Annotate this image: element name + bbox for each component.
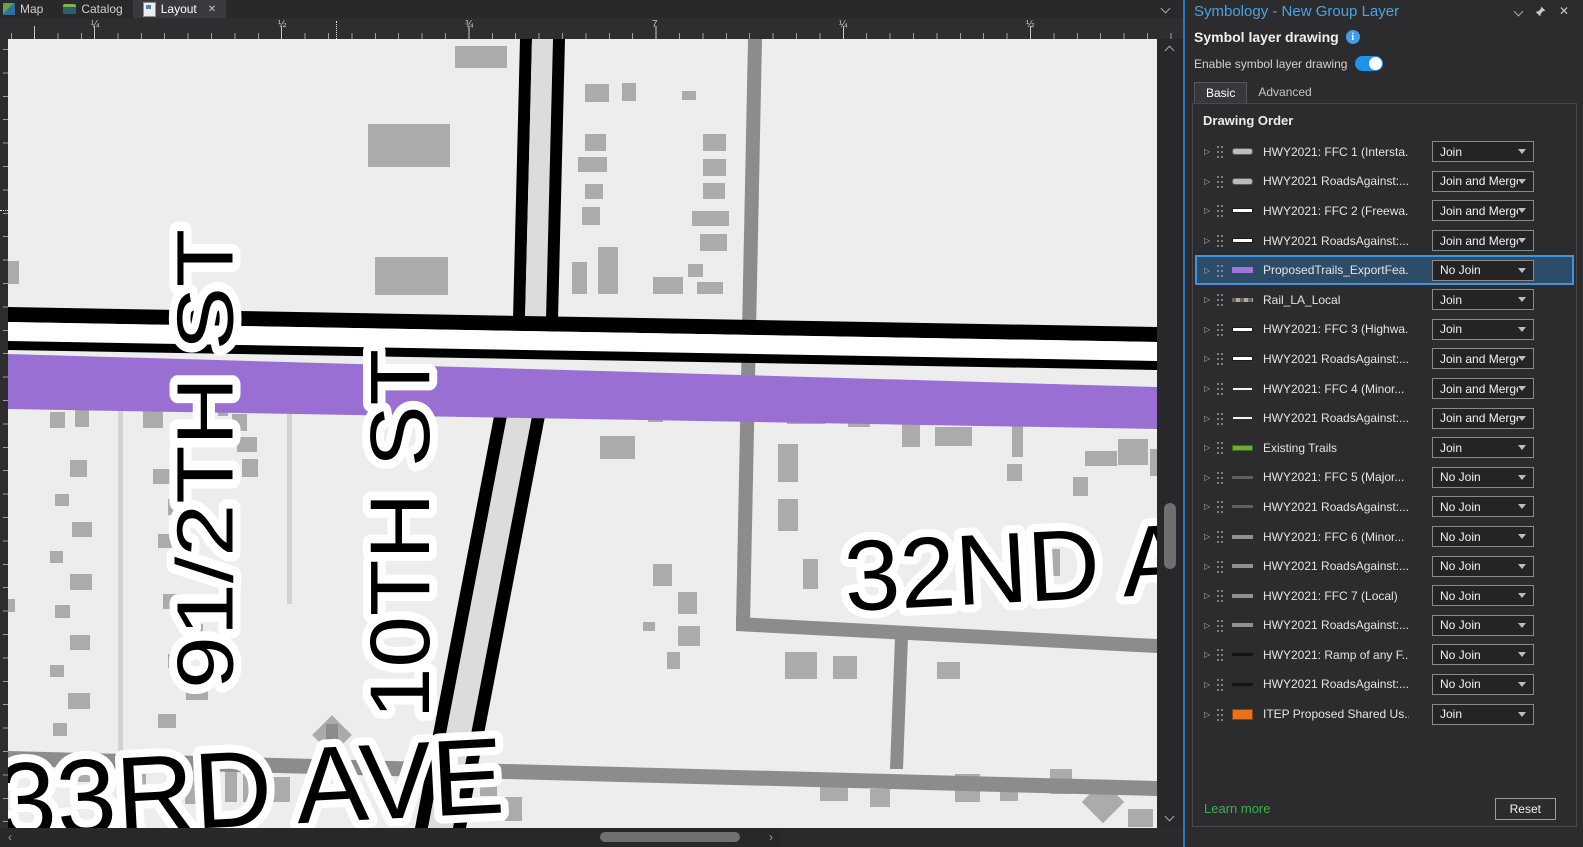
layer-name: HWY2021: FFC 5 (Major...	[1263, 470, 1409, 484]
expand-chevron-icon[interactable]	[1204, 384, 1214, 393]
catalog-icon	[63, 4, 76, 14]
layer-name: HWY2021 RoadsAgainst:...	[1263, 500, 1409, 514]
expand-chevron-icon[interactable]	[1204, 443, 1214, 452]
drag-handle-icon[interactable]	[1216, 175, 1224, 188]
dropdown-caret-icon	[1518, 712, 1526, 717]
expand-chevron-icon[interactable]	[1204, 473, 1214, 482]
expand-chevron-icon[interactable]	[1204, 325, 1214, 334]
line-symbol-swatch	[1232, 267, 1253, 273]
dropdown-caret-icon	[1518, 564, 1526, 569]
enable-symbol-layer-row: Enable symbol layer drawing	[1194, 56, 1383, 71]
layer-name: HWY2021 RoadsAgainst:...	[1263, 411, 1409, 425]
line-symbol-swatch	[1232, 594, 1253, 598]
layer-row[interactable]: HWY2021 RoadsAgainst:... No Join	[1195, 492, 1574, 522]
dropdown-caret-icon	[1518, 268, 1526, 273]
ruler-label: ¾	[465, 19, 473, 30]
layer-row[interactable]: HWY2021: FFC 3 (Highwa... Join	[1195, 315, 1574, 345]
drag-handle-icon[interactable]	[1216, 412, 1224, 425]
tenth-street-road-upper	[513, 39, 565, 319]
line-symbol-swatch	[1232, 535, 1253, 539]
drag-handle-icon[interactable]	[1216, 234, 1224, 247]
line-symbol-swatch	[1232, 298, 1253, 302]
layer-name: HWY2021: FFC 2 (Freewa...	[1263, 204, 1409, 218]
expand-chevron-icon[interactable]	[1204, 266, 1214, 275]
expand-chevron-icon[interactable]	[1204, 177, 1214, 186]
line-symbol-swatch	[1232, 623, 1253, 627]
layer-name: HWY2021 RoadsAgainst:...	[1263, 352, 1409, 366]
layer-row[interactable]: Rail_LA_Local Join	[1195, 285, 1574, 315]
dropdown-caret-icon	[1518, 593, 1526, 598]
join-mode-dropdown[interactable]: No Join	[1432, 496, 1534, 517]
pin-icon[interactable]	[1535, 6, 1546, 17]
dropdown-caret-icon	[1518, 149, 1526, 154]
join-mode-dropdown[interactable]: Join	[1432, 141, 1534, 162]
layer-name: HWY2021: FFC 3 (Highwa...	[1263, 322, 1409, 336]
line-symbol-swatch	[1232, 356, 1253, 361]
expand-chevron-icon[interactable]	[1204, 502, 1214, 511]
drag-handle-icon[interactable]	[1216, 500, 1224, 513]
join-mode-dropdown[interactable]: No Join	[1432, 526, 1534, 547]
ruler-major-ticks	[0, 26, 1183, 39]
dropdown-caret-icon	[1518, 208, 1526, 213]
join-mode-dropdown[interactable]: No Join	[1432, 644, 1534, 665]
reset-button[interactable]: Reset	[1495, 798, 1556, 820]
ruler-label: ¼	[839, 19, 847, 30]
dropdown-caret-icon	[1518, 504, 1526, 509]
street-label-32nd-ave: 32ND A	[841, 503, 1157, 633]
drag-handle-icon[interactable]	[1216, 530, 1224, 543]
scroll-right-icon[interactable]: ›	[769, 830, 773, 844]
drag-handle-icon[interactable]	[1216, 352, 1224, 365]
layout-map-canvas[interactable]: 91/2TH ST 10TH ST 32ND A 33RD AVE	[8, 39, 1157, 828]
ruler-label: ½	[1026, 19, 1034, 30]
ruler-label: ½	[278, 19, 286, 30]
layer-row[interactable]: HWY2021 RoadsAgainst:... Join and Merge	[1195, 344, 1574, 374]
line-symbol-swatch	[1232, 178, 1253, 185]
drag-handle-icon[interactable]	[1216, 619, 1224, 632]
horizontal-scrollbar-thumb[interactable]	[600, 832, 740, 842]
dropdown-caret-icon	[1518, 623, 1526, 628]
line-symbol-swatch	[1232, 709, 1253, 720]
drag-handle-icon[interactable]	[1216, 441, 1224, 454]
drag-handle-icon[interactable]	[1216, 293, 1224, 306]
join-mode-dropdown[interactable]: No Join	[1432, 556, 1534, 577]
layer-row[interactable]: HWY2021: FFC 2 (Freewa... Join and Merge	[1195, 196, 1574, 226]
join-mode-dropdown[interactable]: Join and Merge	[1432, 230, 1534, 251]
layer-row[interactable]: HWY2021: FFC 7 (Local) No Join	[1195, 581, 1574, 611]
horizontal-ruler: ¼ ½ ¾ 7 ¼ ½	[0, 18, 1183, 40]
enable-toggle[interactable]	[1355, 56, 1383, 71]
layer-row[interactable]: HWY2021: FFC 5 (Major... No Join	[1195, 463, 1574, 493]
join-mode-dropdown[interactable]: Join	[1432, 289, 1534, 310]
line-symbol-swatch	[1232, 148, 1253, 155]
layer-name: ProposedTrails_ExportFea...	[1263, 263, 1409, 277]
layer-name: HWY2021 RoadsAgainst:...	[1263, 618, 1409, 632]
drawing-order-list: HWY2021: FFC 1 (Intersta... Join HWY2021…	[1195, 137, 1574, 729]
expand-chevron-icon[interactable]	[1204, 236, 1214, 245]
scroll-up-icon[interactable]	[1165, 46, 1175, 56]
layout-page-icon	[143, 2, 156, 17]
expand-chevron-icon[interactable]	[1204, 710, 1214, 719]
panel-tabs: Basic Advanced	[1194, 82, 1323, 103]
layer-row[interactable]: HWY2021 RoadsAgainst:... Join and Merge	[1195, 403, 1574, 433]
drag-handle-icon[interactable]	[1216, 648, 1224, 661]
join-mode-dropdown[interactable]: No Join	[1432, 674, 1534, 695]
line-symbol-swatch	[1232, 653, 1253, 656]
expand-chevron-icon[interactable]	[1204, 562, 1214, 571]
line-symbol-swatch	[1232, 445, 1253, 451]
vertical-scrollbar[interactable]	[1157, 39, 1183, 828]
symbol-layer-drawing-label: Symbol layer drawing	[1194, 29, 1339, 45]
expand-chevron-icon[interactable]	[1204, 147, 1214, 156]
tab-catalog[interactable]: Catalog	[53, 0, 132, 18]
join-mode-dropdown[interactable]: Join	[1432, 704, 1534, 725]
layer-row[interactable]: HWY2021 RoadsAgainst:... Join and Merge	[1195, 167, 1574, 197]
vertical-scrollbar-thumb[interactable]	[1164, 503, 1176, 569]
close-tab-icon[interactable]: ✕	[208, 4, 216, 15]
layer-name: Existing Trails	[1263, 441, 1409, 455]
tab-advanced[interactable]: Advanced	[1247, 82, 1322, 103]
scroll-down-icon[interactable]	[1165, 812, 1175, 822]
close-panel-icon[interactable]: ✕	[1559, 5, 1569, 17]
line-symbol-swatch	[1232, 683, 1253, 686]
layer-name: HWY2021 RoadsAgainst:...	[1263, 234, 1409, 248]
drag-handle-icon[interactable]	[1216, 382, 1224, 395]
expand-chevron-icon[interactable]	[1204, 354, 1214, 363]
join-mode-dropdown[interactable]: Join and Merge	[1432, 378, 1534, 399]
basic-tab-content: Drawing Order HWY2021: FFC 1 (Intersta..…	[1192, 103, 1577, 827]
expand-chevron-icon[interactable]	[1204, 621, 1214, 630]
join-mode-dropdown[interactable]: Join	[1432, 437, 1534, 458]
layer-row[interactable]: HWY2021: Ramp of any F... No Join	[1195, 640, 1574, 670]
dropdown-caret-icon	[1518, 534, 1526, 539]
expand-chevron-icon[interactable]	[1204, 532, 1214, 541]
layer-row[interactable]: ITEP Proposed Shared Us... Join	[1195, 699, 1574, 729]
join-mode-dropdown[interactable]: No Join	[1432, 260, 1534, 281]
line-symbol-swatch	[1232, 327, 1253, 332]
layout-view-area: Map Catalog Layout ✕ ¼ ½ ¾ 7 ¼ ½	[0, 0, 1183, 847]
dropdown-caret-icon	[1518, 416, 1526, 421]
arcgis-pro-window: Map Catalog Layout ✕ ¼ ½ ¾ 7 ¼ ½	[0, 0, 1583, 847]
expand-chevron-icon[interactable]	[1204, 295, 1214, 304]
horizontal-scrollbar[interactable]: ‹ ›	[0, 828, 783, 847]
layer-name: HWY2021 RoadsAgainst:...	[1263, 559, 1409, 573]
tab-map[interactable]: Map	[0, 0, 53, 18]
dropdown-caret-icon	[1518, 475, 1526, 480]
dropdown-caret-icon	[1518, 179, 1526, 184]
ruler-guide-line	[336, 21, 337, 39]
drag-handle-icon[interactable]	[1216, 471, 1224, 484]
expand-chevron-icon[interactable]	[1204, 206, 1214, 215]
drag-handle-icon[interactable]	[1216, 678, 1224, 691]
line-symbol-swatch	[1232, 387, 1253, 391]
layer-row[interactable]: HWY2021 RoadsAgainst:... No Join	[1195, 670, 1574, 700]
drag-handle-icon[interactable]	[1216, 204, 1224, 217]
dropdown-caret-icon	[1518, 238, 1526, 243]
join-mode-dropdown[interactable]: Join and Merge	[1432, 348, 1534, 369]
line-symbol-swatch	[1232, 208, 1253, 213]
dropdown-caret-icon	[1518, 356, 1526, 361]
layer-name: HWY2021: FFC 1 (Intersta...	[1263, 145, 1409, 159]
layer-row[interactable]: HWY2021: FFC 6 (Minor... No Join	[1195, 522, 1574, 552]
expand-chevron-icon[interactable]	[1204, 650, 1214, 659]
join-mode-dropdown[interactable]: No Join	[1432, 585, 1534, 606]
tab-catalog-label: Catalog	[81, 2, 122, 16]
expand-chevron-icon[interactable]	[1204, 680, 1214, 689]
drag-handle-icon[interactable]	[1216, 589, 1224, 602]
ruler-label: 7	[652, 19, 658, 30]
join-mode-dropdown[interactable]: No Join	[1432, 615, 1534, 636]
dropdown-caret-icon	[1518, 682, 1526, 687]
layer-name: Rail_LA_Local	[1263, 293, 1409, 307]
panel-header-icons: ✕	[1515, 5, 1569, 17]
expand-chevron-icon[interactable]	[1204, 414, 1214, 423]
view-tab-bar: Map Catalog Layout ✕	[0, 0, 1183, 19]
panel-title: Symbology - New Group Layer	[1194, 3, 1399, 20]
layer-name: ITEP Proposed Shared Us...	[1263, 707, 1409, 721]
ruler-guide-line	[0, 210, 8, 211]
tab-map-label: Map	[20, 2, 43, 16]
dropdown-caret-icon	[1518, 386, 1526, 391]
layer-name: HWY2021: FFC 6 (Minor...	[1263, 530, 1409, 544]
learn-more-link[interactable]: Learn more	[1204, 801, 1270, 816]
line-symbol-swatch	[1232, 564, 1253, 568]
layer-row[interactable]: HWY2021 RoadsAgainst:... No Join	[1195, 551, 1574, 581]
panel-menu-chevron-icon[interactable]	[1513, 6, 1523, 16]
layer-row[interactable]: HWY2021 RoadsAgainst:... No Join	[1195, 611, 1574, 641]
dropdown-caret-icon	[1518, 652, 1526, 657]
symbol-layer-drawing-heading: Symbol layer drawing i	[1194, 29, 1360, 45]
layer-row-selected[interactable]: ProposedTrails_ExportFea... No Join	[1195, 255, 1574, 285]
street-label-9-half-st: 91/2TH ST	[161, 229, 250, 689]
layer-name: HWY2021 RoadsAgainst:...	[1263, 174, 1409, 188]
drawing-order-heading: Drawing Order	[1203, 113, 1293, 128]
map-view-icon	[3, 3, 15, 15]
drag-handle-icon[interactable]	[1216, 560, 1224, 573]
layer-name: HWY2021: Ramp of any F...	[1263, 648, 1409, 662]
layer-row[interactable]: HWY2021: FFC 4 (Minor... Join and Merge	[1195, 374, 1574, 404]
tab-layout[interactable]: Layout ✕	[133, 0, 226, 18]
layer-row[interactable]: HWY2021: FFC 1 (Intersta... Join	[1195, 137, 1574, 167]
line-symbol-swatch	[1232, 238, 1253, 243]
dropdown-caret-icon	[1518, 445, 1526, 450]
line-symbol-swatch	[1232, 416, 1253, 420]
enable-symbol-layer-label: Enable symbol layer drawing	[1194, 57, 1347, 71]
street-label-10th-st: 10TH ST	[353, 349, 447, 719]
layer-name: HWY2021: FFC 7 (Local)	[1263, 589, 1409, 603]
info-icon[interactable]: i	[1346, 30, 1360, 44]
dropdown-caret-icon	[1518, 297, 1526, 302]
line-symbol-swatch	[1232, 476, 1253, 479]
join-mode-dropdown[interactable]: Join and Merge	[1432, 171, 1534, 192]
tab-basic[interactable]: Basic	[1194, 82, 1247, 103]
drag-handle-icon[interactable]	[1216, 264, 1224, 277]
drag-handle-icon[interactable]	[1216, 708, 1224, 721]
join-mode-dropdown[interactable]: Join and Merge	[1432, 408, 1534, 429]
drag-handle-icon[interactable]	[1216, 323, 1224, 336]
ruler-label: ¼	[91, 19, 99, 30]
layer-row[interactable]: HWY2021 RoadsAgainst:... Join and Merge	[1195, 226, 1574, 256]
drag-handle-icon[interactable]	[1216, 145, 1224, 158]
layer-name: HWY2021 RoadsAgainst:...	[1263, 677, 1409, 691]
layer-name: HWY2021: FFC 4 (Minor...	[1263, 382, 1409, 396]
symbology-panel: Symbology - New Group Layer ✕ Symbol lay…	[1183, 0, 1583, 847]
dropdown-caret-icon	[1518, 327, 1526, 332]
tab-overflow-chevron-icon[interactable]	[1161, 4, 1171, 14]
line-symbol-swatch	[1232, 505, 1253, 508]
scroll-left-icon[interactable]: ‹	[8, 830, 12, 844]
join-mode-dropdown[interactable]: Join and Merge	[1432, 200, 1534, 221]
expand-chevron-icon[interactable]	[1204, 591, 1214, 600]
layer-row[interactable]: Existing Trails Join	[1195, 433, 1574, 463]
join-mode-dropdown[interactable]: Join	[1432, 319, 1534, 340]
tab-layout-label: Layout	[161, 2, 197, 16]
join-mode-dropdown[interactable]: No Join	[1432, 467, 1534, 488]
